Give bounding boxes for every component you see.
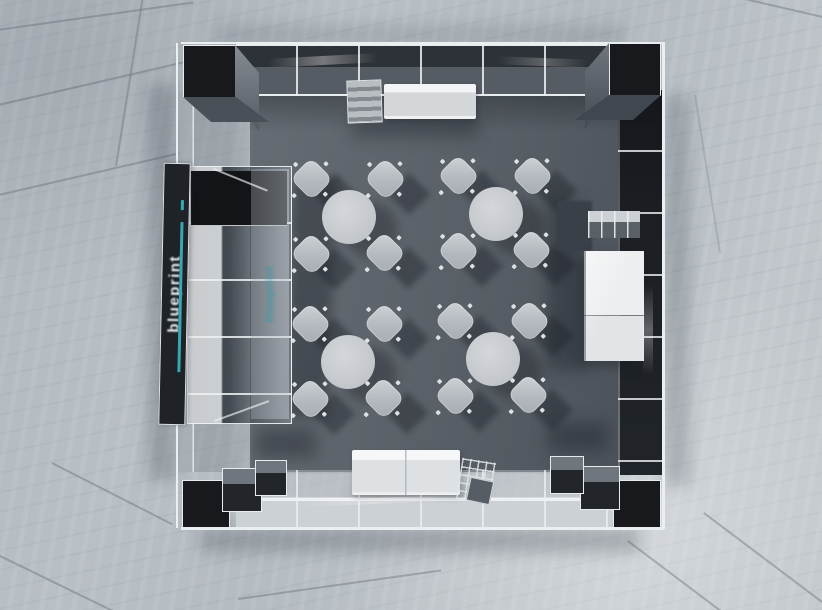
corner-pillar-top-left (183, 45, 236, 98)
corner-shadow (548, 422, 608, 452)
shelf-inner-brand-text: blueprint (264, 266, 276, 322)
pillar-cube (550, 456, 584, 494)
glass-highlight (643, 285, 653, 375)
pillar-cube (255, 460, 287, 496)
marble-seam (628, 540, 749, 610)
dark-desk (557, 201, 592, 251)
marble-seam (0, 552, 116, 610)
frame-edge-right (662, 42, 665, 529)
marble-seam (115, 0, 143, 166)
round-table-top-left[interactable] (322, 190, 376, 244)
marble-seam (694, 95, 721, 253)
round-table-top-right[interactable] (469, 187, 523, 241)
round-table-bottom-right[interactable] (466, 332, 520, 386)
booth-contact-shadow (664, 95, 690, 485)
pillar-cube (580, 466, 620, 510)
display-cabinet (584, 251, 644, 361)
frame-edge-top (181, 42, 664, 44)
brand-banner[interactable]: blueprint (158, 163, 190, 426)
corner-pillar-bottom-right (613, 480, 661, 528)
marble-seam (704, 512, 822, 610)
storage-cubes (588, 211, 640, 238)
shelf-inner-brand-panel: blueprint (251, 169, 289, 419)
marble-seam (238, 569, 441, 599)
marble-seam (736, 0, 822, 26)
booth-contact-shadow (200, 528, 640, 552)
shelf-tower: blueprint (187, 166, 292, 424)
frame-edge-bottom (181, 527, 664, 530)
round-table-bottom-left[interactable] (321, 335, 375, 389)
3d-scene-viewport[interactable]: blueprint blueprint (0, 0, 822, 610)
banner-accent-dot (180, 200, 184, 210)
white-sofa[interactable] (352, 450, 460, 495)
literature-rack (346, 79, 382, 123)
magazine-stand-panel (466, 477, 494, 505)
reception-counter (384, 84, 476, 119)
marble-seam (0, 1, 193, 31)
corner-shadow (256, 428, 316, 458)
corner-pillar-top-right (609, 43, 661, 96)
